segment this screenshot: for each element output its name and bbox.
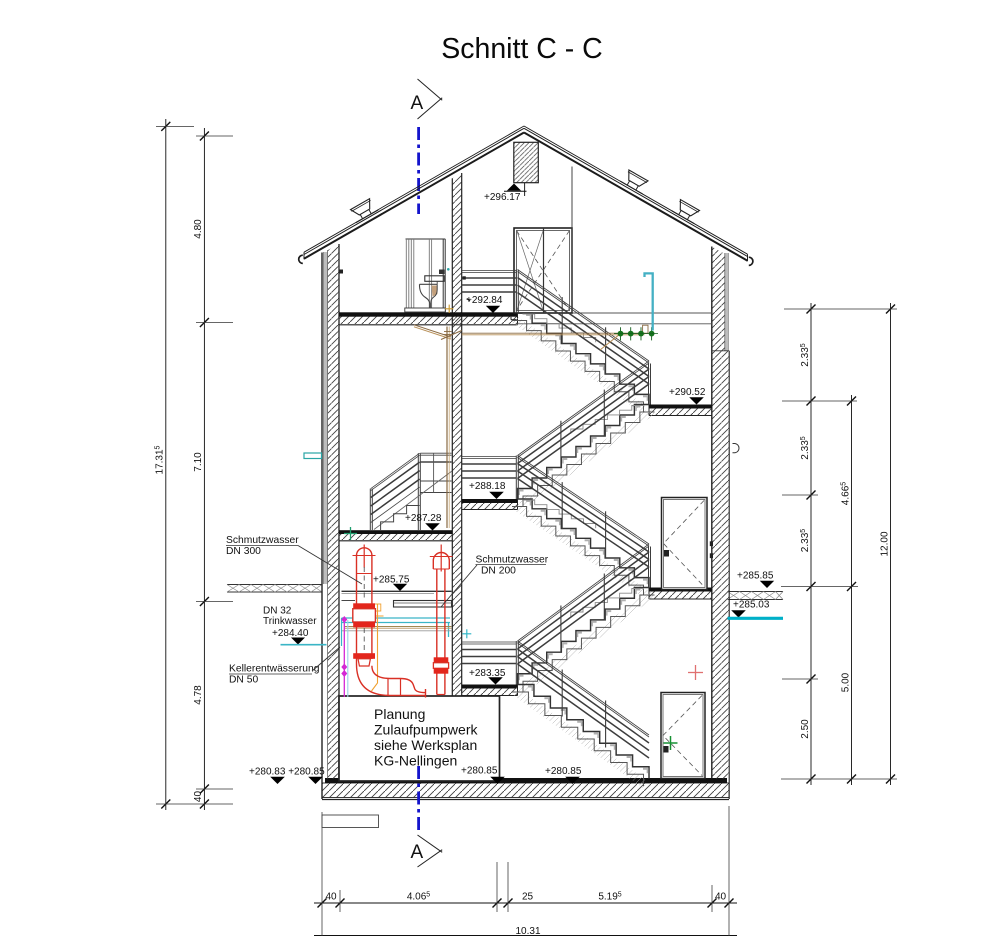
- svg-text:40: 40: [325, 892, 337, 903]
- svg-text:+292.84: +292.84: [466, 295, 503, 306]
- svg-text:+288.18: +288.18: [469, 481, 506, 492]
- svg-text:+296.17: +296.17: [484, 192, 521, 203]
- svg-text:+285.03: +285.03: [733, 600, 770, 611]
- svg-text:7.10: 7.10: [193, 452, 204, 472]
- svg-text:Zulaufpumpwerk: Zulaufpumpwerk: [374, 722, 478, 738]
- svg-text:+285.85: +285.85: [737, 571, 774, 582]
- svg-text:A: A: [411, 93, 424, 114]
- svg-text:+290.52: +290.52: [669, 387, 706, 398]
- svg-text:A: A: [411, 842, 424, 863]
- svg-text:Schnitt C - C: Schnitt C - C: [441, 33, 603, 65]
- svg-text:KG-Nellingen: KG-Nellingen: [374, 753, 457, 769]
- svg-text:Trinkwasser: Trinkwasser: [263, 616, 317, 627]
- svg-text:5.00: 5.00: [841, 672, 852, 692]
- svg-text:siehe Werksplan: siehe Werksplan: [374, 737, 477, 753]
- svg-text:10.31: 10.31: [515, 926, 540, 936]
- svg-text:+280.83 +280.85: +280.83 +280.85: [249, 767, 325, 778]
- svg-text:Planung: Planung: [374, 706, 425, 722]
- svg-text:Schmutzwasser: Schmutzwasser: [226, 535, 299, 546]
- svg-text:Kellerentwässerung: Kellerentwässerung: [229, 664, 320, 675]
- svg-text:17.315: 17.315: [155, 445, 166, 474]
- svg-text:12.00: 12.00: [880, 531, 891, 556]
- svg-text:40: 40: [715, 892, 727, 903]
- svg-text:2.50: 2.50: [800, 719, 811, 739]
- svg-text:+284.40: +284.40: [272, 628, 309, 639]
- svg-text:25: 25: [522, 892, 534, 903]
- svg-text:DN 300: DN 300: [226, 546, 261, 557]
- svg-text:+280.85: +280.85: [461, 766, 498, 777]
- svg-text:DN 50: DN 50: [229, 675, 258, 686]
- svg-text:+280.85: +280.85: [545, 766, 582, 777]
- svg-text:4.78: 4.78: [193, 685, 204, 705]
- svg-text:+287.28: +287.28: [405, 513, 442, 524]
- svg-text:DN 200: DN 200: [481, 566, 516, 577]
- svg-text:4.80: 4.80: [193, 219, 204, 239]
- svg-text:40: 40: [193, 791, 204, 803]
- svg-text:Schmutzwasser: Schmutzwasser: [476, 555, 549, 566]
- svg-text:DN 32: DN 32: [263, 606, 292, 617]
